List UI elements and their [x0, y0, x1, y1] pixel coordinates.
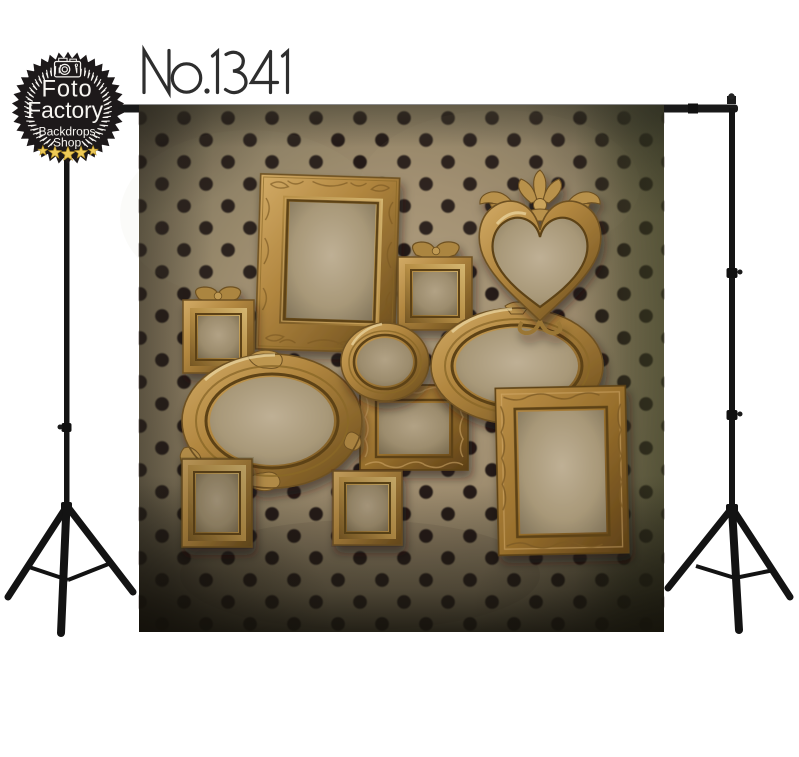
svg-text:Factory: Factory [27, 97, 104, 123]
svg-text:Shop: Shop [53, 136, 81, 150]
